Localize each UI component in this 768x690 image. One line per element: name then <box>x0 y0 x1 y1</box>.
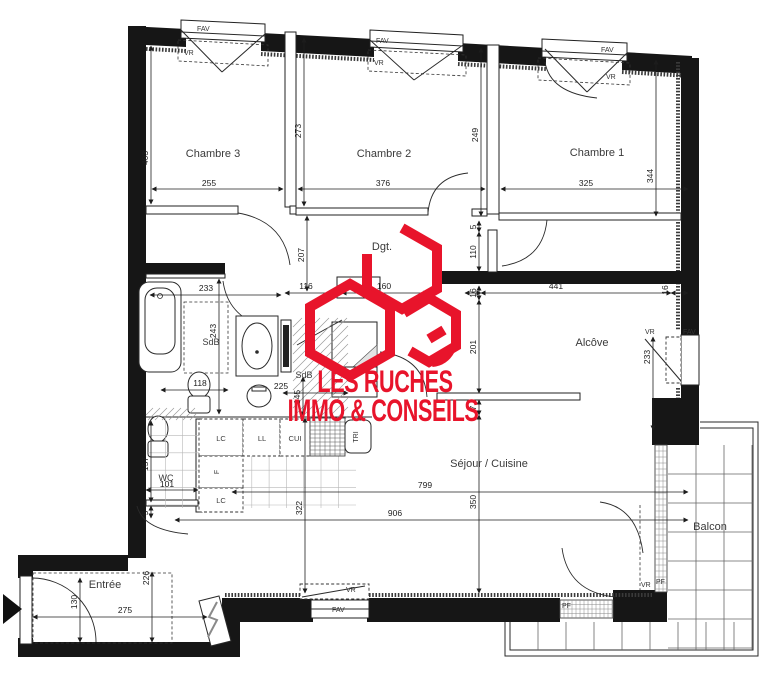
dim-249: 249 <box>470 128 480 142</box>
dim-225: 225 <box>274 381 288 391</box>
window-pf: PF <box>560 600 613 618</box>
dim-corr-5: 5 <box>468 224 478 229</box>
window1-vr-label: VR <box>184 50 194 57</box>
cabinet-cui-label: CUI <box>289 434 302 443</box>
balcony-glazing <box>655 445 667 592</box>
dim-233: 233 <box>199 283 213 293</box>
dim-207: 207 <box>296 248 306 262</box>
dim-226: 226 <box>141 571 151 585</box>
dim-160: 160 <box>377 281 391 291</box>
cabinet-ll-label: LL <box>258 434 266 443</box>
logo-line2: IMMO & CONSEILS <box>288 393 479 428</box>
room-sdb1-label: SdB <box>202 337 219 347</box>
floor-plan: FAV VR FAV VR FAV VR VR FAV <box>0 0 768 690</box>
balcony-door-vr-label: VR <box>641 582 651 589</box>
room-sdb2-label: SdB <box>295 370 312 380</box>
window4-vr-label: VR <box>645 329 655 336</box>
dim-255: 255 <box>202 178 216 188</box>
dim-233-window: 233 <box>642 350 652 364</box>
dim-350: 350 <box>468 495 478 509</box>
dim-325: 325 <box>579 178 593 188</box>
dim-243: 243 <box>208 324 218 338</box>
room-balcon-label: Balcon <box>693 521 727 533</box>
dim-344: 344 <box>645 169 655 183</box>
cabinet-f-label: F <box>214 470 221 474</box>
room-entree-label: Entrée <box>89 579 121 591</box>
dim-376: 376 <box>376 178 390 188</box>
room-chambre3-label: Chambre 3 <box>186 148 240 160</box>
dim-273: 273 <box>293 124 303 138</box>
cabinet-tri-label: TRI <box>353 431 360 442</box>
window1-fav-label: FAV <box>197 26 210 33</box>
window5-fav-label: FAV <box>332 607 345 614</box>
dim-116: 116 <box>299 281 313 291</box>
window2-fav-label: FAV <box>376 38 389 45</box>
window2-vr-label: VR <box>374 60 384 67</box>
dim-157: 157 <box>140 457 150 471</box>
dim-799: 799 <box>418 480 432 490</box>
room-alcove-label: Alcôve <box>575 337 608 349</box>
dim-110: 110 <box>468 245 478 259</box>
kitchen-cabinets: LC LL CUI TRI F LC <box>199 418 371 512</box>
dim-118: 118 <box>193 378 207 388</box>
window4-fav-label: FAV <box>683 329 696 336</box>
windows-top: FAV VR FAV VR FAV VR <box>178 20 630 98</box>
entry-arrow-icon <box>3 594 22 624</box>
floor-plan-svg: FAV VR FAV VR FAV VR VR FAV <box>0 0 768 690</box>
dim-201: 201 <box>468 340 478 354</box>
dim-130: 130 <box>69 595 79 609</box>
window6-pf-label: PF <box>562 603 571 610</box>
window3-fav-label: FAV <box>601 47 614 54</box>
balcony-door-pf-label: PF <box>656 579 665 586</box>
dim-275: 275 <box>118 605 132 615</box>
window3-vr-label: VR <box>606 74 616 81</box>
dim-16-left: 16 <box>468 288 478 298</box>
dim-906: 906 <box>388 508 402 518</box>
sink <box>242 323 272 369</box>
agency-logo: LES RUCHES IMMO & CONSEILS <box>288 228 479 428</box>
dim-322: 322 <box>294 501 304 515</box>
dim-wc-5: 5 <box>140 510 150 515</box>
room-chambre2-label: Chambre 2 <box>357 148 411 160</box>
dim-441: 441 <box>549 281 563 291</box>
front-door <box>20 576 32 644</box>
dim-403: 403 <box>140 151 150 165</box>
room-dgt-label: Dgt. <box>372 241 392 253</box>
room-chambre1-label: Chambre 1 <box>570 147 624 159</box>
cabinet-lc2-label: LC <box>216 496 226 505</box>
room-sejour-label: Séjour / Cuisine <box>450 458 528 470</box>
cabinet-lc1-label: LC <box>216 434 226 443</box>
room-wc-label: WC <box>159 473 174 483</box>
dim-16-right: 16 <box>660 285 670 295</box>
